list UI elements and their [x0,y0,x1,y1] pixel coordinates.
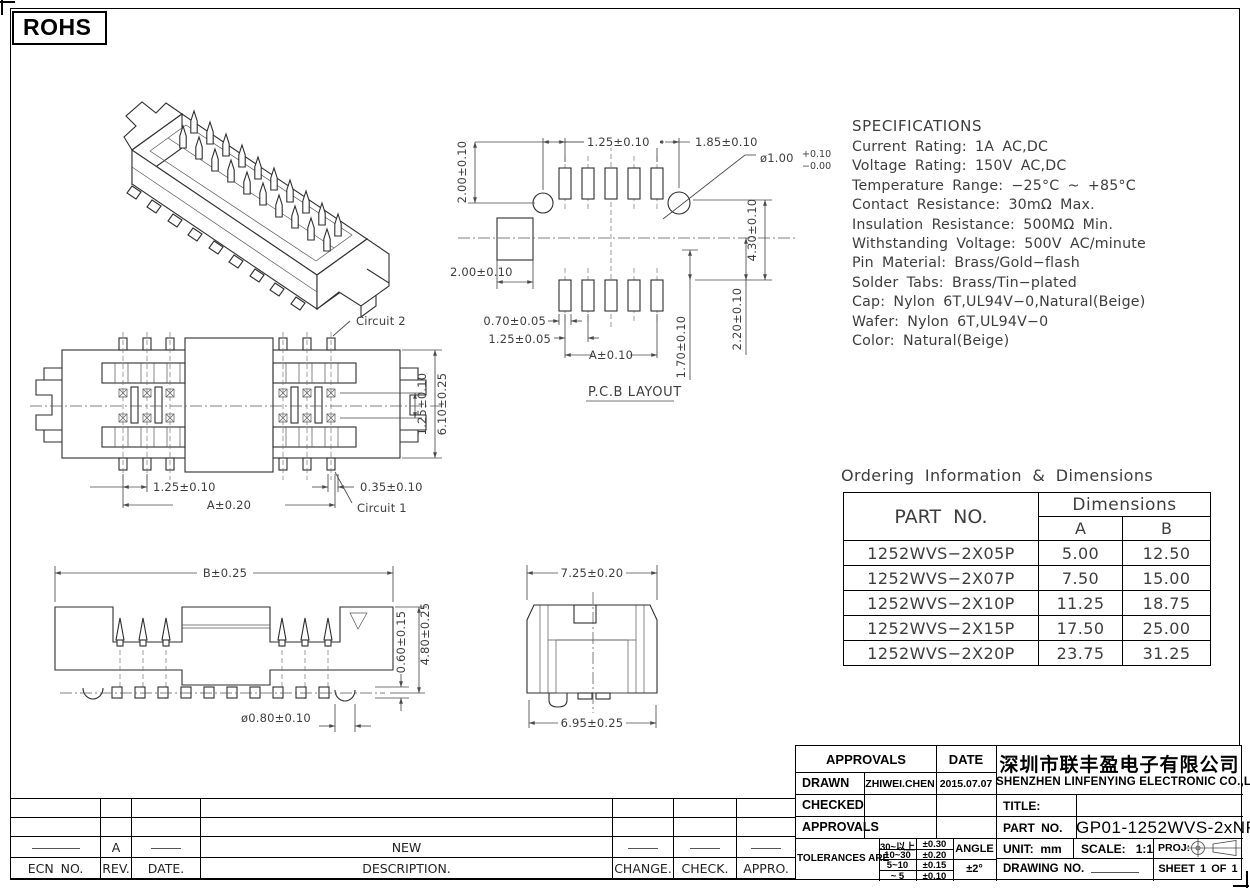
table-row: 1252WVS−2X15P 17.50 25.00 [844,616,1211,641]
scale-cell: SCALE: 1:1 [1081,842,1153,856]
svg-text:ø0.80±0.10: ø0.80±0.10 [241,711,311,725]
specifications-block: SPECIFICATIONS Current Rating: 1A AC,DC … [852,117,1212,351]
pcb-layout-view: 1.25±0.10 1.85±0.10 2.00±0.10 ø1.00 +0.1… [450,112,850,412]
spec-line: Solder Tabs: Brass/Tin−plated [852,274,1212,293]
dim-b: 31.25 [1123,641,1211,666]
part-no: 1252WVS−2X05P [844,541,1039,566]
placeholder-dash [32,848,80,849]
company-name-en: SHENZHEN LINFENYING ELECTRONIC CO.,LTD [996,776,1243,788]
col-appro: APPRO. [737,858,796,880]
svg-text:−0.00: −0.00 [802,161,831,172]
solder-pins [112,687,329,698]
trim-mark-bottom-right-v [1246,871,1248,888]
spec-line: Wafer: Nylon 6T,UL94V−0 [852,313,1212,332]
approvals-header: APPROVALS [796,752,936,767]
svg-text:1.70±0.10: 1.70±0.10 [674,316,688,379]
revision-entry-row: A NEW [11,837,796,858]
front-view-dimensions: B±0.25 0.60±0.15 4.80±0.25 ø0.80±0.10 [55,566,432,732]
engineering-drawing-sheet: { "badge": { "rohs": "ROHS" }, "spec": {… [0,0,1250,889]
col-check: CHECK. [674,858,737,880]
svg-text:6.95±0.25: 6.95±0.25 [561,716,624,730]
svg-text:2.00±0.10: 2.00±0.10 [450,265,513,279]
svg-text:+0.10: +0.10 [802,149,831,160]
tol-value-4: ±0.10 [916,871,953,882]
scale-value: 1:1 [1136,842,1153,856]
col-rev: REV. [101,858,132,880]
angle-value: ±2° [953,863,996,875]
title-label: TITLE: [1003,799,1040,813]
dim-b: 12.50 [1123,541,1211,566]
svg-text:B±0.25: B±0.25 [203,566,247,580]
drawn-date: 2015.07.07 [936,778,996,790]
angle-label: ANGLE [953,843,996,855]
dim-a: 5.00 [1039,541,1123,566]
svg-text:0.70±0.05: 0.70±0.05 [483,314,546,328]
part-no-label: PART NO. [1003,821,1062,835]
unit-value: mm [1040,842,1061,856]
title-block: APPROVALS DATE DRAWN ZHIWEI.CHEN 2015.07… [795,745,1242,880]
rohs-label: ROHS [23,14,91,40]
table-row: 1252WVS−2X10P 11.25 18.75 [844,591,1211,616]
date-header: DATE [936,752,996,767]
front-view-body [55,607,393,701]
pcb-dimensions: 1.25±0.10 1.85±0.10 2.00±0.10 ø1.00 +0.1… [450,134,831,380]
drawing-no-label: DRAWING NO. [1003,863,1084,875]
svg-text:7.25±0.20: 7.25±0.20 [561,566,624,580]
dim-b: 15.00 [1123,566,1211,591]
spec-line: Withstanding Voltage: 500V AC/minute [852,235,1212,254]
svg-text:0.35±0.10: 0.35±0.10 [360,480,423,494]
rev-value: A [101,837,132,858]
part-no: 1252WVS−2X07P [844,566,1039,591]
col-change: CHANGE. [613,858,674,880]
top-view: Circuit 2 Circuit 1 1.25±0.10 6.10±0.25 … [30,312,470,527]
svg-text:1.25±0.05: 1.25±0.05 [488,332,551,346]
tolerances-label: TOLERANCES ARE [797,853,879,864]
front-view: B±0.25 0.60±0.15 4.80±0.25 ø0.80±0.10 [45,556,475,746]
table-row: 1252WVS−2X07P 7.50 15.00 [844,566,1211,591]
svg-text:A±0.10: A±0.10 [589,348,633,362]
col-ecn-no: ECN NO. [11,858,101,880]
svg-text:1.25±0.10: 1.25±0.10 [415,373,429,436]
dim-a: 23.75 [1039,641,1123,666]
part-no: 1252WVS−2X20P [844,641,1039,666]
svg-text:1.25±0.10: 1.25±0.10 [587,135,650,149]
trim-mark-top-left-v [1,0,3,15]
drawn-label: DRAWN [802,776,849,790]
table-row: 1252WVS−2X05P 5.00 12.50 [844,541,1211,566]
svg-text:4.30±0.10: 4.30±0.10 [745,199,759,262]
svg-text:Circuit 1: Circuit 1 [357,501,407,515]
ordering-table: PART NO. Dimensions A B 1252WVS−2X05P 5.… [843,492,1211,666]
tol-value-1: ±0.30 [916,839,953,850]
sheet-label: SHEET 1 OF 1 [1153,863,1243,875]
svg-text:2.00±0.10: 2.00±0.10 [455,141,469,204]
svg-text:4.80±0.25: 4.80±0.25 [418,603,432,666]
spec-line: Pin Material: Brass/Gold−flash [852,254,1212,273]
dim-b: 25.00 [1123,616,1211,641]
top-view-body [30,332,442,480]
ordering-col-a: A [1039,517,1123,541]
ordering-col-b: B [1123,517,1211,541]
placeholder-dash [1091,872,1139,873]
revision-header-row: ECN NO. REV. DATE. DESCRIPTION. CHANGE. … [11,858,796,880]
svg-text:ø1.00: ø1.00 [760,151,794,165]
placeholder-dash [751,848,781,849]
svg-text:2.20±0.10: 2.20±0.10 [730,288,744,351]
placeholder-dash [690,848,720,849]
svg-text:6.10±0.25: 6.10±0.25 [435,373,449,436]
spec-line: Insulation Resistance: 500MΩ Min. [852,216,1212,235]
part-no: 1252WVS−2X10P [844,591,1039,616]
pcb-layout-title: P.C.B LAYOUT [586,385,682,401]
svg-text:Circuit 2: Circuit 2 [356,314,406,328]
ordering-col-part-no: PART NO. [844,493,1039,541]
placeholder-dash [628,848,658,849]
specifications-title: SPECIFICATIONS [852,117,1212,135]
side-view: 7.25±0.20 6.95±0.25 [490,550,700,745]
ordering-table-title: Ordering Information & Dimensions [841,466,1153,485]
unit-cell: UNIT: mm [1003,842,1062,856]
projection-symbol-icon [1186,839,1241,857]
tol-range-4: ~ 5 [879,871,916,882]
svg-text:0.60±0.15: 0.60±0.15 [394,611,408,674]
spec-line: Color: Natural(Beige) [852,332,1212,351]
spec-line: Temperature Range: −25°C ~ +85°C [852,177,1212,196]
placeholder-dash [151,848,181,849]
checked-label: CHECKED [802,798,864,812]
ordering-col-dimensions: Dimensions [1039,493,1211,517]
tol-range-2: 10~30 [879,850,916,861]
dim-a: 11.25 [1039,591,1123,616]
svg-text:1.25±0.10: 1.25±0.10 [153,480,216,494]
spec-line: Contact Resistance: 30mΩ Max. [852,196,1212,215]
tol-range-3: 5~10 [879,860,916,871]
revision-empty-row [11,818,796,837]
company-name-cn: 深圳市联丰盈电子有限公司 [996,750,1243,777]
description-value: NEW [201,837,613,858]
svg-text:P.C.B LAYOUT: P.C.B LAYOUT [588,385,682,400]
revision-empty-row [11,799,796,818]
connector-3d-sketch [124,102,389,317]
drawn-by: ZHIWEI.CHEN [864,778,936,790]
part-no: 1252WVS−2X15P [844,616,1039,641]
spec-line: Current Rating: 1A AC,DC [852,138,1212,157]
svg-text:1.85±0.10: 1.85±0.10 [695,135,758,149]
isometric-view [62,45,402,330]
col-date: DATE. [132,858,201,880]
tol-value-2: ±0.20 [916,850,953,861]
svg-text:A±0.20: A±0.20 [207,498,251,512]
spec-line: Cap: Nylon 6T,UL94V−0,Natural(Beige) [852,293,1212,312]
dim-a: 7.50 [1039,566,1123,591]
spec-line: Voltage Rating: 150V AC,DC [852,157,1212,176]
dim-b: 18.75 [1123,591,1211,616]
approvals-row-label: APPROVALS [802,820,879,834]
side-view-body [527,592,657,713]
revision-table: A NEW ECN NO. REV. DATE. DESCRIPTION. CH… [10,798,796,880]
scale-label: SCALE: [1081,842,1126,856]
unit-label: UNIT: [1003,842,1034,856]
col-description: DESCRIPTION. [201,858,613,880]
table-row: 1252WVS−2X20P 23.75 31.25 [844,641,1211,666]
part-no-value: GP01-1252WVS-2xNP [1076,818,1243,838]
dim-a: 17.50 [1039,616,1123,641]
side-view-dimensions: 7.25±0.20 6.95±0.25 [527,565,657,730]
rohs-badge: ROHS [12,11,107,45]
tol-value-3: ±0.15 [916,860,953,871]
